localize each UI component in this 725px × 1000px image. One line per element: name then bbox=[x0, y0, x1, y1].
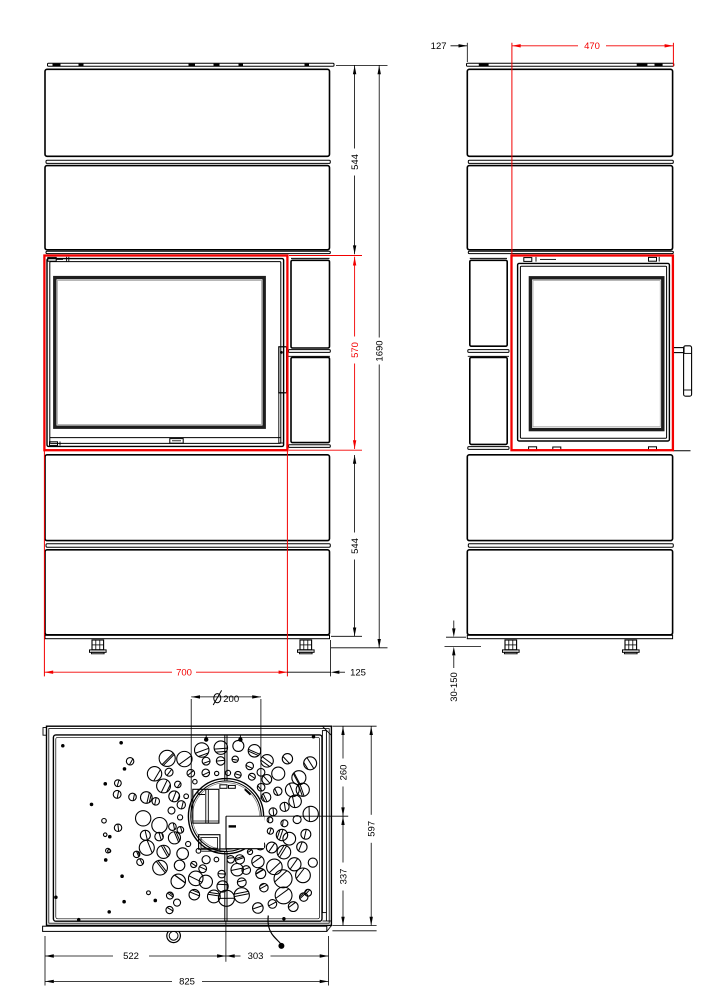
svg-text:127: 127 bbox=[431, 41, 447, 52]
svg-text:1690: 1690 bbox=[375, 340, 386, 361]
svg-text:125: 125 bbox=[350, 667, 366, 678]
svg-text:597: 597 bbox=[367, 821, 378, 837]
svg-text:544: 544 bbox=[350, 154, 361, 170]
svg-text:570: 570 bbox=[350, 342, 361, 358]
svg-text:30-150: 30-150 bbox=[449, 672, 460, 702]
svg-text:470: 470 bbox=[584, 41, 600, 52]
svg-text:522: 522 bbox=[123, 951, 139, 962]
svg-text:544: 544 bbox=[350, 538, 361, 554]
svg-text:303: 303 bbox=[248, 951, 264, 962]
svg-text:200: 200 bbox=[223, 694, 239, 705]
svg-text:825: 825 bbox=[179, 977, 195, 988]
svg-text:260: 260 bbox=[338, 765, 349, 781]
svg-text:337: 337 bbox=[338, 869, 349, 885]
svg-text:700: 700 bbox=[176, 667, 192, 678]
